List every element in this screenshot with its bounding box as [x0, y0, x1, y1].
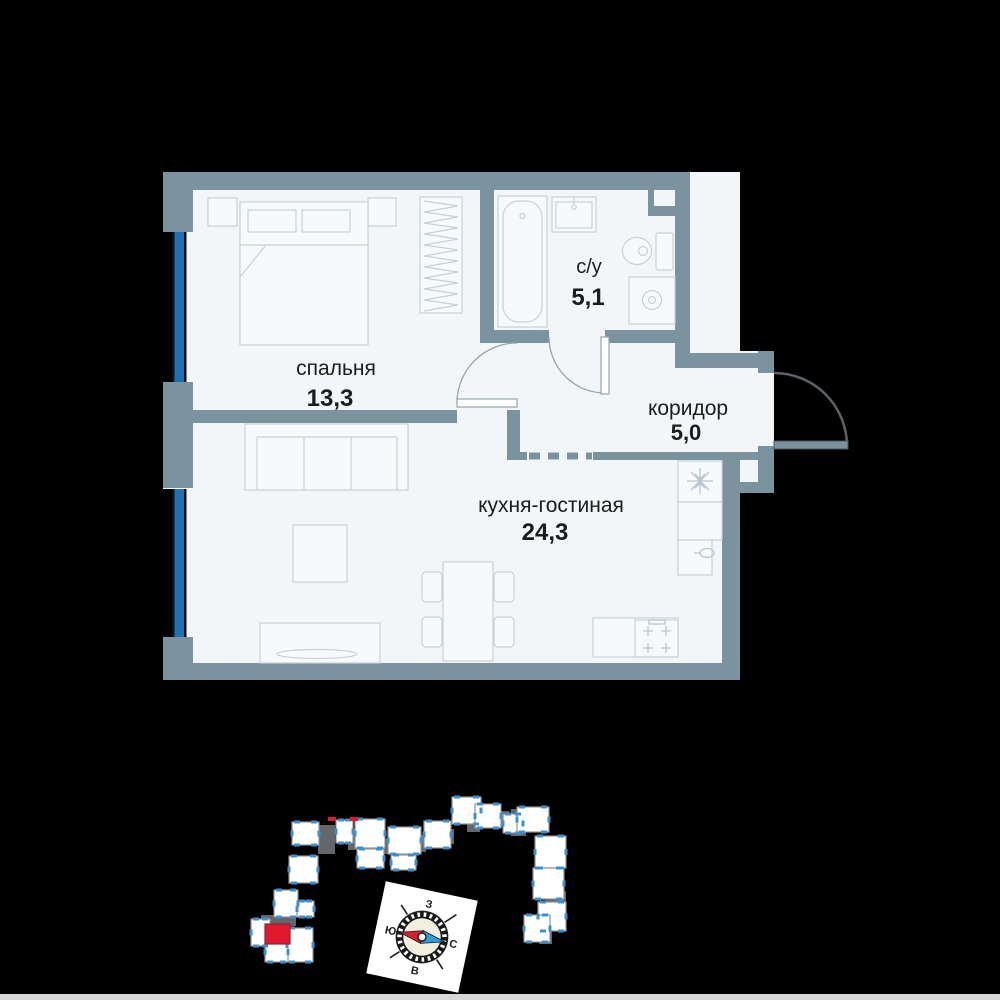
building-block: [297, 901, 314, 917]
room-label-bedroom: спальня: [296, 357, 376, 380]
building-block: [265, 942, 288, 962]
window-tick: [311, 844, 317, 847]
red-tick: [328, 817, 336, 821]
room-area-corridor: 5,0: [671, 420, 702, 445]
window-tick: [393, 869, 399, 872]
window-tick: [522, 821, 525, 827]
window-tick: [338, 842, 344, 845]
window-tick: [450, 832, 453, 838]
window-tick: [305, 927, 311, 930]
window-tick: [534, 849, 537, 855]
window-tick: [473, 796, 479, 799]
window-tick: [548, 817, 551, 823]
building-block: [336, 820, 353, 843]
building-block: [424, 821, 451, 848]
room-label-bathroom: с/у: [576, 256, 602, 278]
window-tick: [311, 821, 317, 824]
window-tick: [443, 847, 449, 850]
building-block: [274, 890, 298, 917]
building-block: [292, 822, 319, 845]
window-tick: [519, 831, 525, 834]
window-tick: [383, 856, 386, 862]
window-tick: [262, 945, 268, 948]
window-tick: [516, 817, 519, 823]
window-tick: [273, 901, 276, 907]
window-tick: [390, 860, 393, 866]
sink-icon: [552, 197, 596, 232]
window-tick: [408, 869, 414, 872]
building-block: [391, 855, 416, 870]
window-tick: [335, 829, 338, 835]
building-core: [318, 825, 335, 854]
window-tick: [515, 813, 521, 816]
window-tick: [376, 867, 382, 870]
window-tick: [558, 835, 564, 838]
building-block: [388, 827, 421, 854]
window-tick: [384, 831, 387, 837]
window-tick: [356, 856, 359, 862]
window-tick: [288, 867, 291, 873]
highlighted-unit: [265, 924, 290, 944]
window-tick: [426, 820, 432, 823]
window-tick: [426, 847, 432, 850]
window-tick: [477, 827, 483, 830]
tv-stand-icon: [260, 623, 380, 663]
window-tick: [535, 867, 541, 870]
window-tick: [345, 842, 351, 845]
window-tick: [290, 916, 296, 919]
window-tick: [537, 835, 543, 838]
window-tick: [299, 900, 305, 903]
washing-machine-icon: [629, 277, 675, 324]
window-tick: [500, 813, 503, 819]
window-tick: [549, 926, 552, 932]
nightstand-icon: [208, 198, 237, 226]
room-label-corridor: коридор: [648, 397, 728, 420]
window-tick: [415, 860, 418, 866]
room-area-kitchen-living: 24,3: [522, 519, 569, 546]
window-tick: [359, 848, 365, 851]
window-tick: [317, 867, 320, 873]
room-area-bathroom: 5,1: [571, 284, 604, 311]
window-tick: [253, 945, 259, 948]
window-tick: [299, 916, 305, 919]
window-tick: [451, 808, 454, 814]
window-tick: [387, 838, 390, 844]
window-tick: [519, 806, 525, 809]
window-tick: [267, 961, 273, 964]
wardrobe-icon: [420, 197, 462, 313]
window-tick: [354, 831, 357, 837]
window-tick: [565, 849, 568, 855]
window-tick: [390, 826, 396, 829]
building-block: [517, 807, 549, 832]
window-tick: [473, 823, 479, 826]
window-tick: [359, 867, 365, 870]
window-tick: [310, 855, 316, 858]
window-tick: [264, 949, 267, 955]
window-tick: [310, 882, 316, 885]
window-tick: [413, 826, 419, 829]
compass: З Ю С В: [366, 881, 477, 992]
window-tick: [565, 914, 568, 920]
window-tick: [420, 838, 423, 844]
building-block: [535, 836, 566, 868]
window-tick: [493, 803, 499, 806]
window-tick: [262, 918, 268, 921]
window-tick: [423, 832, 426, 838]
window-tick: [443, 820, 449, 823]
window-tick: [290, 889, 296, 892]
window-tick: [253, 918, 259, 921]
window-tick: [541, 831, 547, 834]
window-tick: [318, 831, 321, 837]
window-tick: [537, 914, 540, 920]
window-tick: [312, 942, 315, 948]
window-tick: [541, 806, 547, 809]
window-tick: [393, 854, 399, 857]
window-tick: [540, 901, 546, 904]
window-tick: [377, 818, 383, 821]
screenshot-stage: спальня 13,3 с/у 5,1 коридор 5,0 кухня-г…: [0, 0, 1000, 1000]
building-block: [533, 868, 564, 899]
stove-icon: [635, 620, 678, 657]
nightstand-icon: [368, 198, 396, 226]
window-tick: [477, 803, 483, 806]
window-tick: [313, 906, 316, 912]
counter-and-stove: [593, 618, 678, 657]
window-tick: [296, 906, 299, 912]
building-block: [289, 856, 318, 883]
bathtub-icon: [498, 196, 547, 327]
bed-icon: [240, 202, 368, 345]
window-tick: [376, 848, 382, 851]
window-tick: [526, 941, 532, 944]
floor-plan-svg: спальня 13,3 с/у 5,1 коридор 5,0 кухня-г…: [0, 0, 1000, 1000]
window-tick: [305, 961, 311, 964]
building-block: [355, 819, 385, 848]
window-tick: [563, 881, 566, 887]
window-tick: [306, 900, 312, 903]
window-tick: [291, 882, 297, 885]
window-tick: [480, 808, 483, 814]
room-label-kitchen-living: кухня-гостиная: [478, 494, 624, 517]
sofa-icon: [245, 424, 408, 490]
window-tick: [338, 819, 344, 822]
room-area-bedroom: 13,3: [307, 385, 354, 412]
building-block: [287, 928, 313, 962]
building-block: [357, 849, 384, 868]
window-tick: [505, 813, 511, 816]
window-glass: [175, 232, 185, 382]
window-tick: [505, 832, 511, 835]
window-tick: [291, 831, 294, 837]
entrance-door: [774, 373, 848, 449]
window-tick: [558, 930, 564, 933]
window-tick: [474, 813, 477, 819]
window-tick: [289, 961, 295, 964]
window-tick: [526, 914, 532, 917]
window-tick: [556, 898, 562, 901]
window-tick: [542, 914, 548, 917]
window-tick: [306, 916, 312, 919]
window-tick: [532, 881, 535, 887]
coffee-table-icon: [293, 525, 347, 582]
window-tick: [502, 821, 505, 827]
window-tick: [523, 926, 526, 932]
window-tick: [291, 855, 297, 858]
window-glass: [175, 489, 185, 637]
window-tick: [454, 823, 460, 826]
window-tick: [294, 821, 300, 824]
window-tick: [276, 889, 282, 892]
window-tick: [294, 844, 300, 847]
window-tick: [535, 898, 541, 901]
window-tick: [276, 916, 282, 919]
window-tick: [454, 796, 460, 799]
window-tick: [542, 941, 548, 944]
window-tick: [408, 854, 414, 857]
window-tick: [287, 949, 290, 955]
window-tick: [250, 930, 253, 936]
window-tick: [493, 827, 499, 830]
red-tick: [350, 817, 358, 821]
fridge-icon: [678, 461, 722, 502]
window-tick: [558, 901, 564, 904]
window-tick: [556, 867, 562, 870]
window-tick: [280, 961, 286, 964]
window-tick: [540, 930, 546, 933]
bottom-strip: [0, 994, 1000, 1000]
